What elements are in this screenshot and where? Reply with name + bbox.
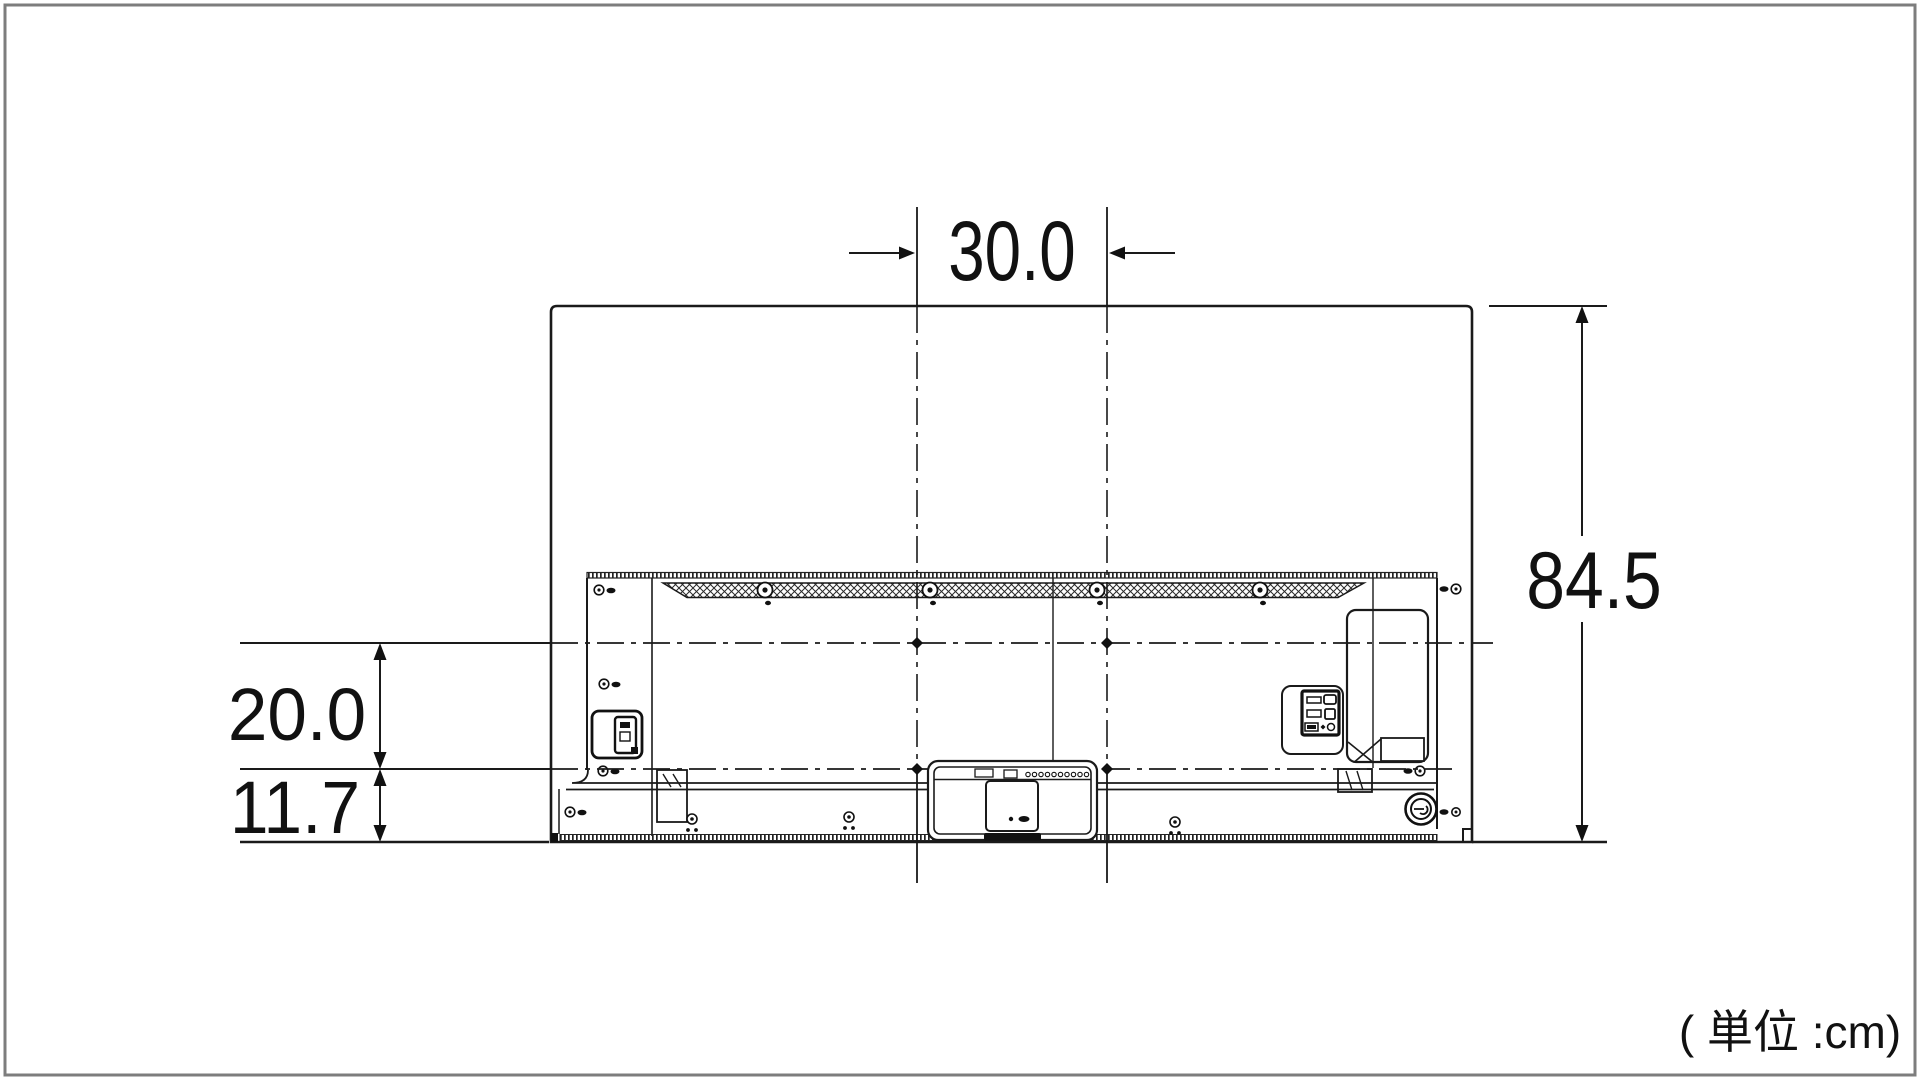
arrowhead-up-icon — [374, 769, 387, 786]
tv-rear-dimension-diagram: 30.0 84.5 20.0 11.7 ( 単位 :cm) — [0, 0, 1920, 1080]
stand-cable-cover — [986, 781, 1038, 831]
dimension-drawing-page: 30.0 84.5 20.0 11.7 ( 単位 :cm) — [0, 0, 1920, 1080]
dimension-label-overall-height: 84.5 — [1526, 536, 1662, 626]
arrowhead-right-icon — [899, 247, 915, 260]
hook-tab-right — [1338, 769, 1372, 792]
hook-tab-left — [657, 770, 687, 822]
dimension-label-mount-width: 30.0 — [948, 204, 1076, 298]
arrowhead-up-icon — [374, 643, 387, 660]
dimension-left-offsets: 20.0 11.7 — [228, 643, 549, 849]
arrowhead-down-icon — [374, 752, 387, 769]
stand-foot-bar — [984, 833, 1041, 841]
unit-note: ( 単位 :cm) — [1679, 1006, 1901, 1058]
bottom-left-end-cap — [551, 833, 558, 842]
arrowhead-left-icon — [1109, 247, 1125, 260]
power-connector — [1406, 794, 1437, 825]
rear-cover-plate — [1347, 610, 1428, 762]
dimension-label-lower-offset: 11.7 — [230, 767, 360, 849]
connector-terminal-block — [1282, 686, 1343, 754]
stand-base — [928, 761, 1097, 841]
arrowhead-up-icon — [1576, 306, 1589, 323]
dimension-label-upper-offset: 20.0 — [228, 674, 366, 757]
usb-port-block — [592, 711, 642, 758]
arrowhead-down-icon — [374, 825, 387, 842]
housing-top-serrated-edge — [587, 573, 1437, 579]
cover-plate-corner-tab — [1381, 738, 1424, 761]
arrowhead-down-icon — [1576, 825, 1589, 842]
dimension-mount-width: 30.0 — [849, 204, 1175, 298]
dimension-overall-height: 84.5 — [1472, 306, 1662, 842]
